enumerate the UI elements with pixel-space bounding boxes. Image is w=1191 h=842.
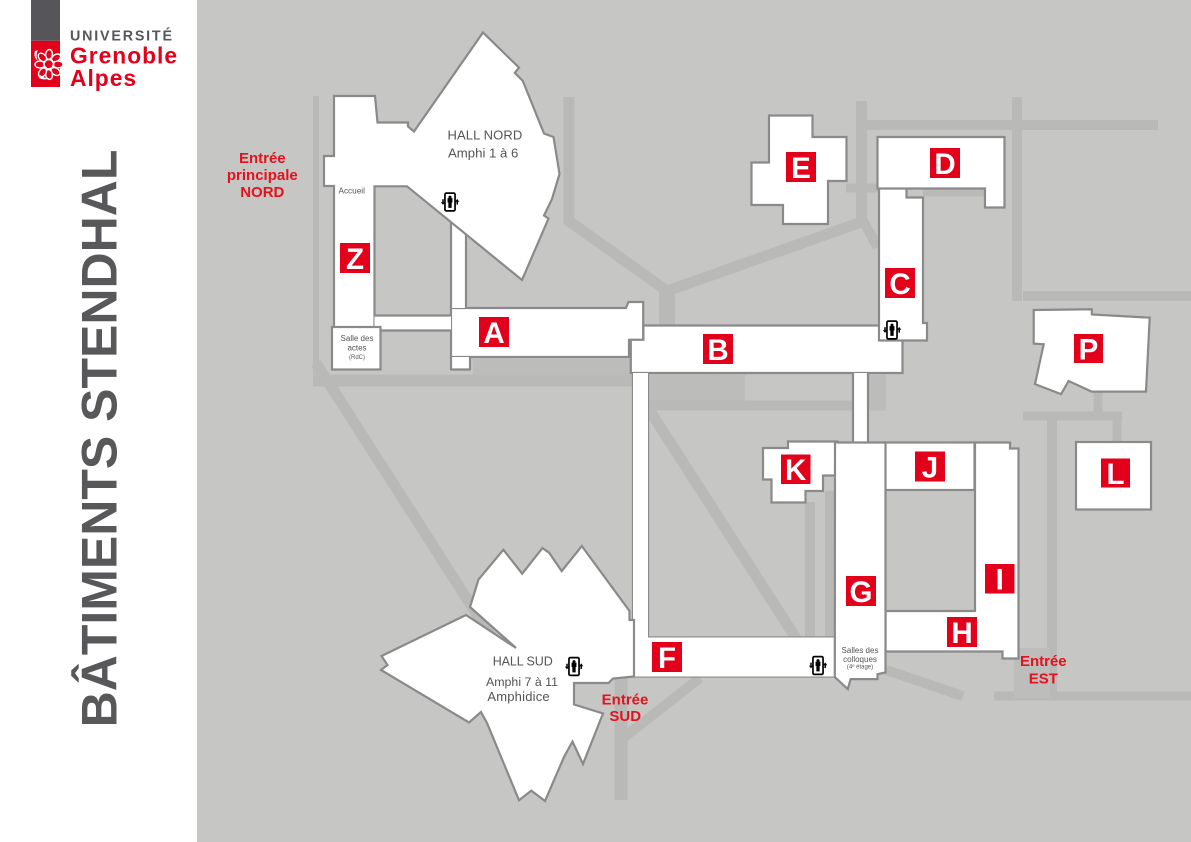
svg-text:G: G [850,576,873,609]
svg-text:B: B [707,334,728,367]
svg-text:Entrée: Entrée [239,150,286,167]
svg-text:HALL NORD: HALL NORD [447,127,522,142]
svg-text:D: D [934,148,955,181]
svg-text:EST: EST [1029,671,1058,688]
svg-text:NORD: NORD [240,184,284,201]
svg-text:H: H [951,617,972,650]
svg-text:Entrée: Entrée [602,691,649,708]
svg-text:SUD: SUD [609,708,641,725]
svg-text:I: I [996,564,1004,597]
svg-text:Z: Z [346,243,364,276]
svg-text:K: K [785,454,807,487]
svg-text:(4ᵉ étage): (4ᵉ étage) [847,664,873,670]
svg-text:Alpes: Alpes [70,65,137,91]
svg-text:actes: actes [347,344,366,353]
svg-text:HALL SUD: HALL SUD [493,655,553,669]
svg-text:Accueil: Accueil [339,187,366,196]
svg-text:(RdC): (RdC) [349,355,365,361]
svg-text:colloques: colloques [843,655,877,664]
svg-text:C: C [889,268,910,301]
svg-text:BÂTIMENTS STENDHAL: BÂTIMENTS STENDHAL [72,150,128,728]
svg-text:Amphi 7 à 11: Amphi 7 à 11 [486,675,558,689]
svg-text:Salles des: Salles des [842,646,879,655]
svg-text:E: E [791,152,811,185]
svg-text:Amphidice: Amphidice [487,689,550,704]
svg-text:A: A [483,317,504,350]
svg-text:L: L [1106,458,1124,491]
svg-text:P: P [1079,333,1099,366]
svg-text:principale: principale [227,167,298,184]
svg-text:Salle des: Salle des [341,334,374,343]
svg-text:J: J [922,451,938,484]
svg-text:Entrée: Entrée [1020,653,1067,670]
svg-text:Amphi 1 à 6: Amphi 1 à 6 [448,146,518,161]
svg-text:F: F [658,642,676,675]
